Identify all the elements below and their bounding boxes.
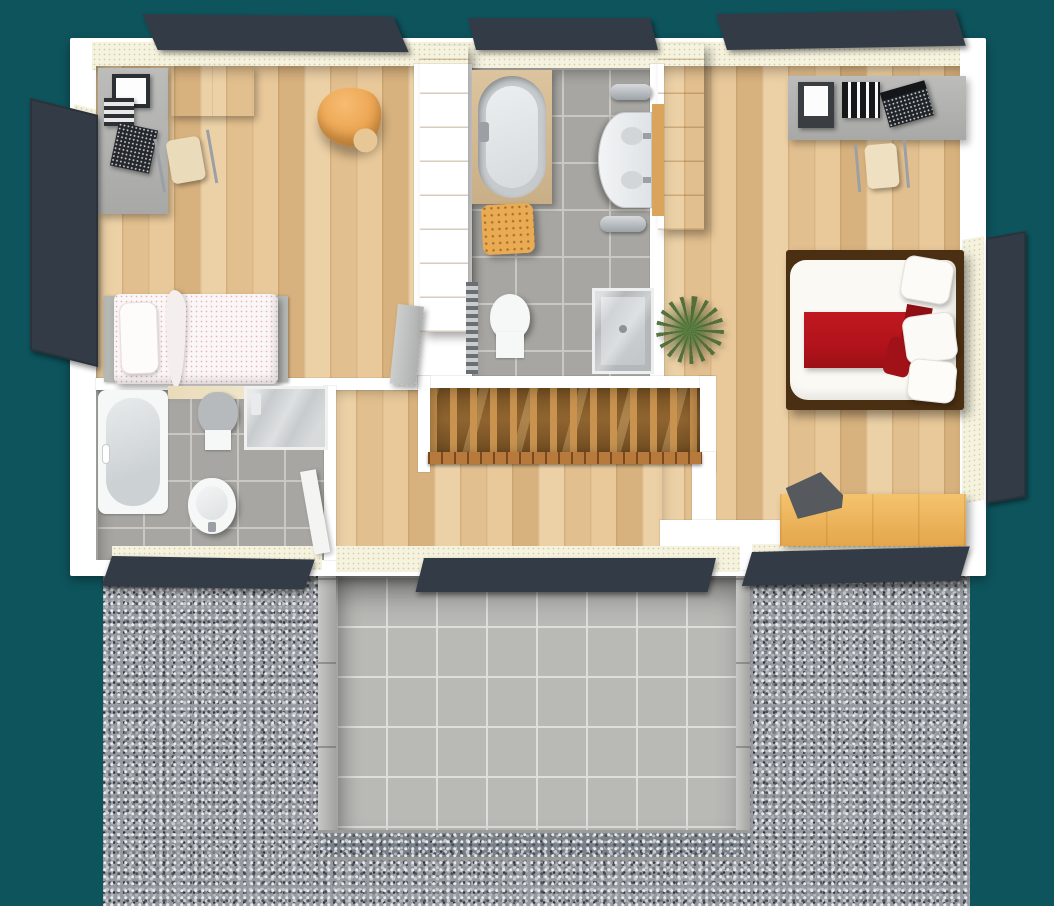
washbasin-small — [188, 478, 236, 534]
oval-bathtub-basin — [486, 86, 538, 188]
roof-window-right — [716, 10, 966, 50]
bottom-window-right — [742, 546, 970, 586]
wardrobe-left — [420, 46, 468, 332]
toilet — [196, 392, 240, 452]
patio-tiles — [336, 576, 736, 830]
faucet-top — [643, 133, 651, 139]
bathtub-faucet — [479, 122, 489, 142]
stairwell — [430, 388, 700, 458]
wall-stair-north — [418, 376, 714, 388]
single-bed — [104, 294, 288, 384]
facade-right — [962, 236, 984, 504]
drain-gravel-strip — [320, 833, 748, 857]
wardrobe-master — [658, 44, 704, 230]
bathtub-small — [98, 390, 168, 514]
ring-binders — [842, 82, 880, 118]
patio-left-wall — [318, 576, 336, 832]
shower-small — [244, 386, 328, 450]
washbasin-small-bowl — [196, 486, 228, 520]
handrail — [428, 452, 702, 464]
towel-rail-bottom — [600, 216, 646, 232]
bottom-window-center — [416, 558, 716, 592]
white-pillow-3 — [906, 358, 958, 405]
patio-curb-bottom — [318, 857, 750, 860]
printer — [798, 82, 834, 128]
shower-main — [592, 288, 654, 374]
toilet-base — [205, 430, 231, 450]
desk-chair-master — [854, 140, 910, 192]
sunken-patio — [318, 574, 750, 860]
laundry-basket — [481, 203, 536, 256]
bathtub-small-handle — [102, 444, 110, 464]
washbasin-small-faucet — [208, 522, 216, 532]
white-pillow-2 — [901, 311, 959, 366]
desk-chair — [154, 130, 219, 193]
shower-small-fitting — [251, 393, 261, 415]
desk-chair-seat — [165, 135, 206, 184]
bathtub-small-basin — [106, 398, 160, 506]
washbasin-bowl-top — [621, 127, 643, 145]
wall-cabinet — [170, 66, 254, 116]
roof-window-left — [142, 14, 409, 52]
desk-chair-master-seat — [864, 143, 900, 190]
shower-drain — [619, 325, 627, 333]
potted-plant — [656, 296, 724, 364]
bottom-window-left — [102, 556, 315, 590]
towel-rail-top — [610, 84, 652, 100]
white-pillow-1 — [899, 254, 956, 306]
vanity-backsplash — [652, 104, 664, 216]
faucet-bottom — [643, 177, 651, 183]
towel-radiator — [466, 282, 478, 374]
washbasin-bowl-bottom — [621, 171, 643, 189]
double-washbasin — [598, 112, 652, 208]
double-bed — [786, 250, 964, 410]
bidet-base — [496, 332, 524, 358]
shutter-right — [986, 231, 1026, 504]
roof-window-center — [468, 18, 658, 50]
floor-plan-canvas — [0, 0, 1054, 906]
shutter-left — [30, 98, 98, 367]
patio-right-wall — [736, 576, 750, 832]
single-bed-pillow — [119, 301, 159, 374]
balusters — [430, 388, 700, 458]
